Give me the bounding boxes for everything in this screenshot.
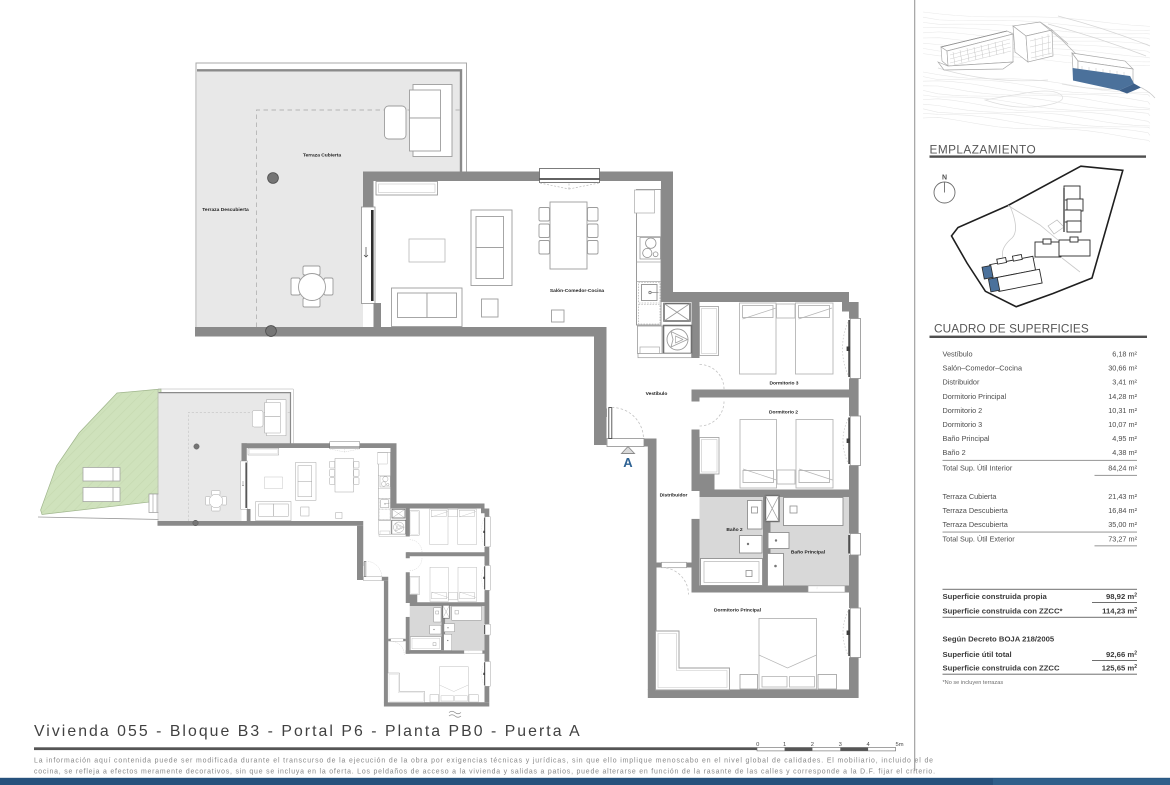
svg-text:CUADRO DE SUPERFICIES: CUADRO DE SUPERFICIES: [934, 322, 1089, 336]
svg-text:73,27 m²: 73,27 m²: [1108, 535, 1137, 544]
svg-text:2: 2: [811, 742, 814, 748]
svg-text:Superficie útil total: Superficie útil total: [943, 650, 1012, 659]
svg-text:Dormitorio Principal: Dormitorio Principal: [714, 608, 762, 614]
svg-text:125,65 m2: 125,65 m2: [1102, 664, 1137, 673]
svg-text:N: N: [942, 175, 947, 182]
svg-text:4: 4: [866, 742, 870, 748]
svg-text:5m: 5m: [895, 742, 903, 748]
svg-text:Superficie construida con ZZCC: Superficie construida con ZZCC: [943, 664, 1060, 673]
svg-text:35,00 m²: 35,00 m²: [1108, 520, 1137, 529]
svg-text:Distribuidor: Distribuidor: [943, 378, 980, 387]
svg-text:Terraza Cubierta: Terraza Cubierta: [943, 492, 998, 501]
svg-text:16,84 m²: 16,84 m²: [1108, 506, 1137, 515]
svg-text:Salón-Comedor-Cocina: Salón-Comedor-Cocina: [550, 288, 605, 294]
svg-text:0: 0: [756, 742, 759, 748]
svg-text:3: 3: [839, 742, 842, 748]
svg-text:84,24 m²: 84,24 m²: [1108, 463, 1137, 472]
svg-text:Vestíbulo: Vestíbulo: [943, 350, 973, 359]
svg-text:Baño 2: Baño 2: [943, 448, 966, 457]
svg-text:Total Sup. Útil Interior: Total Sup. Útil Interior: [943, 463, 1013, 472]
svg-text:Dormitorio 3: Dormitorio 3: [943, 420, 983, 429]
svg-text:92,66 m2: 92,66 m2: [1106, 650, 1137, 659]
svg-text:114,23 m2: 114,23 m2: [1102, 607, 1137, 616]
svg-text:4,38 m²: 4,38 m²: [1112, 448, 1137, 457]
svg-text:Baño Principal: Baño Principal: [791, 550, 826, 556]
svg-text:10,31 m²: 10,31 m²: [1108, 406, 1137, 415]
svg-text:La información aquí contenida: La información aquí contenida puede ser …: [34, 757, 933, 764]
svg-text:Dormitorio 2: Dormitorio 2: [769, 410, 798, 416]
svg-text:Superficie construida propia: Superficie construida propia: [943, 592, 1048, 601]
svg-text:4,95 m²: 4,95 m²: [1112, 434, 1137, 443]
svg-text:Salón–Comedor–Cocina: Salón–Comedor–Cocina: [943, 364, 1023, 373]
svg-text:21,43 m²: 21,43 m²: [1108, 492, 1137, 501]
svg-text:*No se incluyen terrazas: *No se incluyen terrazas: [943, 680, 1004, 686]
svg-text:Baño Principal: Baño Principal: [943, 434, 990, 443]
svg-text:Según Decreto BOJA 218/2005: Según Decreto BOJA 218/2005: [943, 635, 1055, 644]
svg-text:1: 1: [783, 742, 786, 748]
svg-text:Terraza Descubierta: Terraza Descubierta: [943, 520, 1009, 529]
svg-text:Baño 2: Baño 2: [726, 527, 743, 533]
svg-text:A: A: [623, 455, 633, 470]
svg-text:98,92 m2: 98,92 m2: [1106, 592, 1137, 601]
svg-text:3,41 m²: 3,41 m²: [1112, 378, 1137, 387]
svg-text:Dormitorio Principal: Dormitorio Principal: [943, 392, 1007, 401]
svg-text:Total Sup. Útil Exterior: Total Sup. Útil Exterior: [943, 535, 1016, 544]
svg-text:Dormitorio 3: Dormitorio 3: [769, 381, 798, 387]
svg-text:Dormitorio 2: Dormitorio 2: [943, 406, 983, 415]
svg-text:30,66 m²: 30,66 m²: [1108, 364, 1137, 373]
svg-text:Superficie construida con ZZCC: Superficie construida con ZZCC*: [943, 607, 1063, 616]
svg-text:Terraza Descubierta: Terraza Descubierta: [943, 506, 1009, 515]
svg-text:Vestíbulo: Vestíbulo: [646, 391, 668, 397]
svg-text:Vivienda 055 - Bloque B3 - Por: Vivienda 055 - Bloque B3 - Portal P6 - P…: [34, 723, 582, 740]
svg-text:Terraza Descubierta: Terraza Descubierta: [202, 207, 249, 213]
svg-text:EMPLAZAMIENTO: EMPLAZAMIENTO: [930, 143, 1037, 157]
svg-text:14,28 m²: 14,28 m²: [1108, 392, 1137, 401]
svg-text:10,07 m²: 10,07 m²: [1108, 420, 1137, 429]
svg-text:6,18 m²: 6,18 m²: [1112, 350, 1137, 359]
svg-text:Terraza Cubierta: Terraza Cubierta: [303, 153, 342, 159]
svg-text:cocina, se refleja a efectos m: cocina, se refleja a efectos meramente d…: [34, 768, 935, 775]
svg-text:Distribuidor: Distribuidor: [660, 493, 688, 499]
